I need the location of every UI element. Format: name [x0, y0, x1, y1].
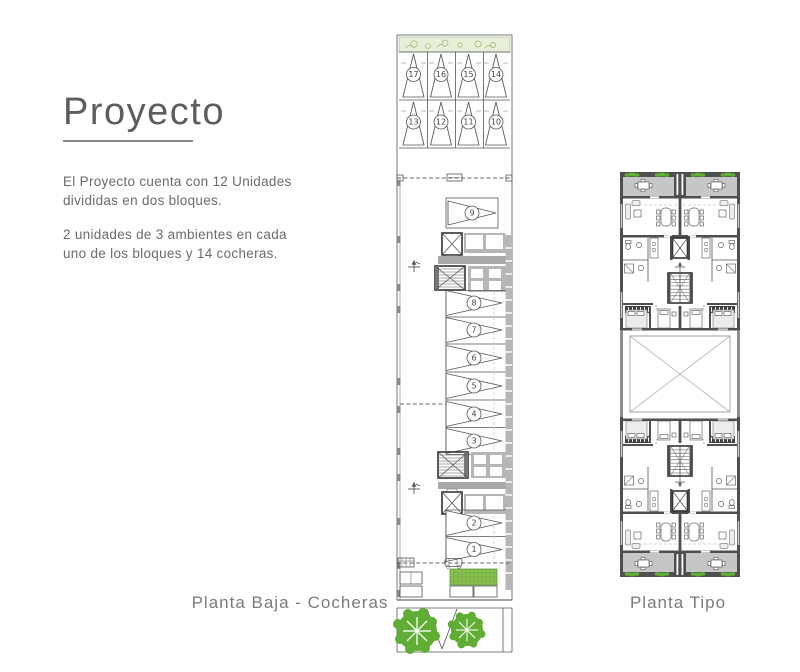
parking-stall-9: 9	[446, 198, 498, 228]
page-title: Proyecto	[63, 92, 363, 134]
intro-p1-line2: divididas en dos bloques.	[63, 191, 363, 211]
intro-paragraph-1: El Proyecto cuenta con 12 Unidades divid…	[63, 172, 363, 211]
parking-number: 10	[491, 118, 501, 127]
page: Proyecto El Proyecto cuenta con 12 Unida…	[0, 0, 800, 672]
north-arrow-icon	[408, 260, 420, 272]
side-parking-stalls-lower: 2 1	[446, 510, 506, 563]
north-arrow-icon	[408, 482, 420, 494]
core-2	[438, 452, 506, 514]
stairs-icon	[438, 452, 468, 478]
svg-text:8: 8	[471, 299, 476, 308]
planta-tipo-plan	[620, 172, 740, 577]
tree-icon	[448, 612, 486, 649]
planta-baja-plan: 17 16 15 14 13 12 11 10	[390, 30, 520, 665]
parking-number: 14	[491, 70, 501, 79]
parking-number: 15	[463, 70, 473, 79]
unit-block-top	[620, 172, 740, 332]
svg-text:3: 3	[471, 437, 476, 446]
property-line	[397, 174, 512, 181]
svg-text:6: 6	[471, 354, 476, 363]
unit-block-bottom	[620, 417, 740, 577]
intro-p2-line2: uno de los bloques y 14 cocheras.	[63, 244, 363, 264]
elevator-icon	[442, 233, 462, 258]
upper-parking-block: 17 16 15 14 13 12 11 10	[399, 52, 510, 148]
svg-text:4: 4	[471, 410, 476, 419]
garden-bed	[450, 569, 497, 585]
parking-number: 17	[408, 70, 418, 79]
parking-number: 16	[436, 70, 446, 79]
svg-text:9: 9	[469, 209, 474, 218]
svg-text:7: 7	[471, 326, 476, 335]
parking-number: 11	[463, 118, 473, 127]
tree-icon	[393, 608, 440, 654]
stairs-icon	[435, 266, 465, 290]
parking-number: 12	[436, 118, 446, 127]
svg-text:1: 1	[471, 545, 476, 554]
svg-text:2: 2	[471, 519, 476, 528]
intro-paragraph-2: 2 unidades de 3 ambientes en cada uno de…	[63, 225, 363, 264]
svg-text:5: 5	[471, 382, 476, 391]
planta-baja-label: Planta Baja - Cocheras	[160, 593, 420, 613]
title-underline	[63, 140, 193, 142]
intro-p2-line1: 2 unidades de 3 ambientes en cada	[63, 225, 363, 245]
intro-p1-line1: El Proyecto cuenta con 12 Unidades	[63, 172, 363, 192]
courtyard	[620, 330, 740, 419]
parking-number: 13	[408, 118, 418, 127]
intro-block: Proyecto El Proyecto cuenta con 12 Unida…	[63, 92, 363, 278]
core-1	[435, 233, 506, 292]
planta-tipo-label: Planta Tipo	[598, 593, 758, 613]
side-parking-stalls: 8 7 6 5 4 3	[446, 291, 506, 455]
planting-strip	[399, 37, 510, 52]
right-locker-wall	[506, 235, 513, 590]
